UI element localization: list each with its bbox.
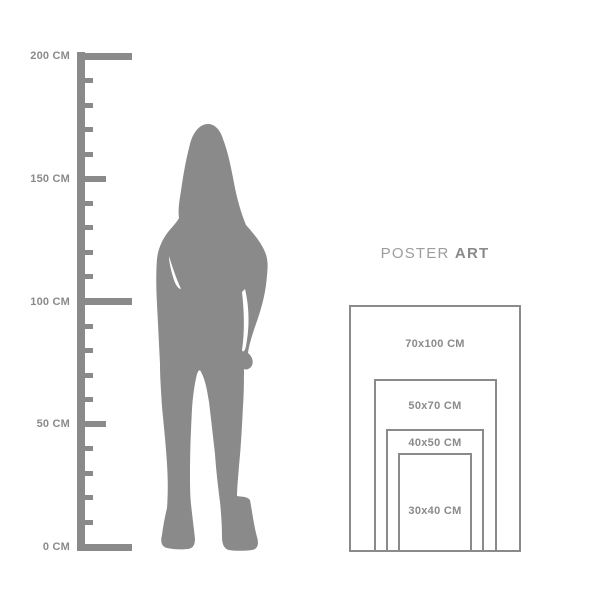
poster-size-guide: 200 CM150 CM100 CM50 CM0 CM POSTER ART 7… (0, 0, 600, 600)
poster-size-label-40x50: 40x50 CM (355, 436, 515, 450)
brand-title: POSTER ART (355, 245, 515, 262)
brand-poster-text: POSTER (381, 245, 450, 262)
brand-art-text: ART (455, 245, 489, 262)
silhouette-body (156, 124, 267, 551)
poster-size-label-50x70: 50x70 CM (355, 399, 515, 413)
poster-size-label-70x100: 70x100 CM (355, 337, 515, 351)
poster-size-label-30x40: 30x40 CM (355, 504, 515, 518)
